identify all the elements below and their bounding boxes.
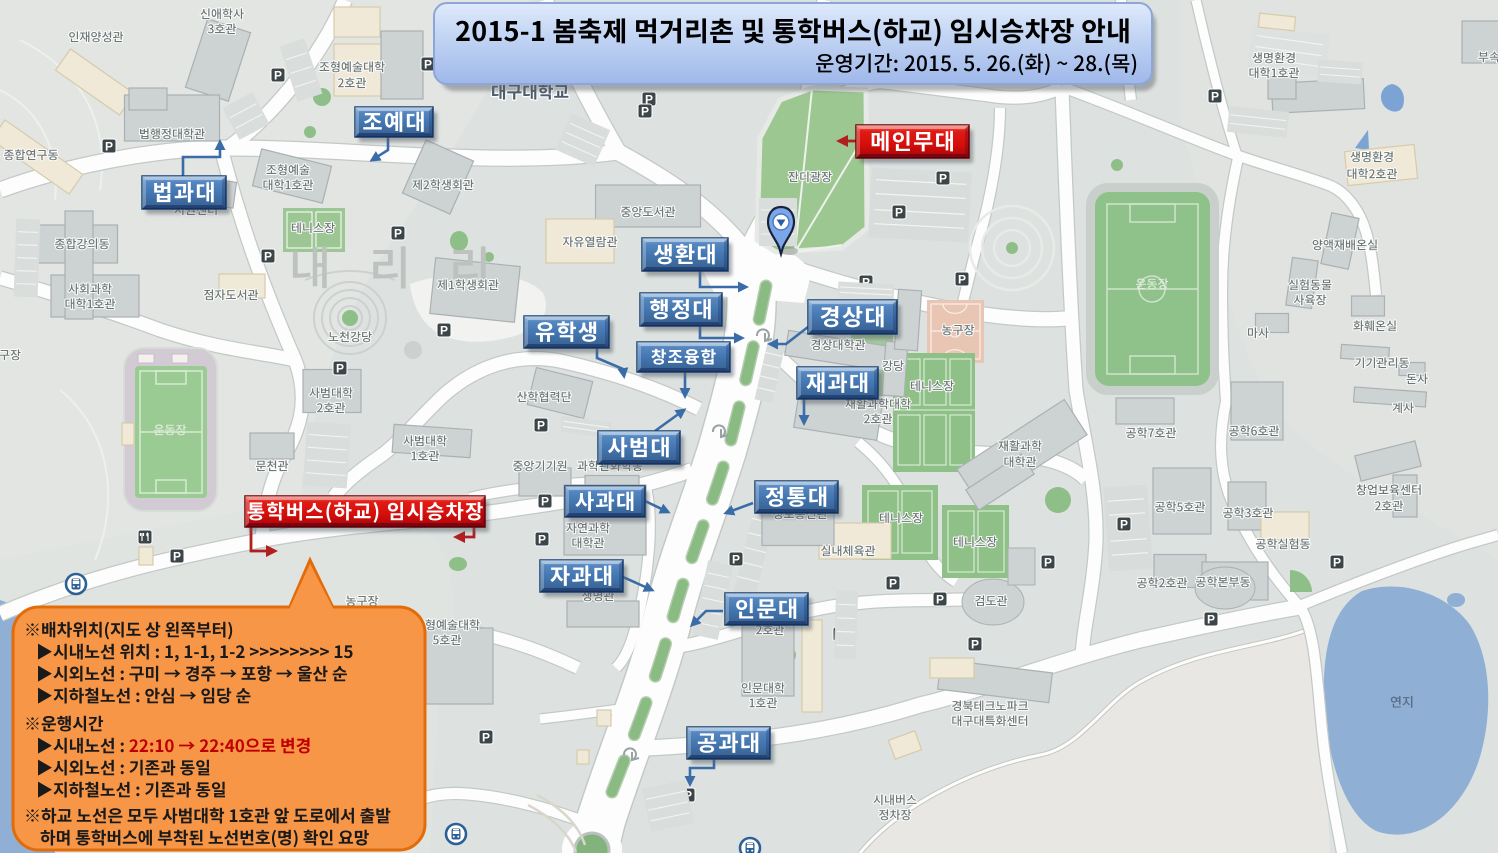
svg-text:P: P xyxy=(440,324,448,338)
svg-text:P: P xyxy=(1211,90,1219,104)
svg-text:P: P xyxy=(264,250,272,264)
svg-text:P: P xyxy=(641,105,649,119)
svg-text:P: P xyxy=(1333,556,1341,570)
svg-text:P: P xyxy=(895,206,903,220)
svg-text:P: P xyxy=(889,577,897,591)
svg-text:P: P xyxy=(105,140,113,154)
svg-text:P: P xyxy=(1207,613,1215,627)
svg-text:P: P xyxy=(173,550,181,564)
svg-text:P: P xyxy=(424,58,432,72)
svg-text:P: P xyxy=(939,172,947,186)
svg-text:P: P xyxy=(958,273,966,287)
svg-text:P: P xyxy=(336,362,344,376)
svg-text:P: P xyxy=(971,638,979,652)
svg-text:P: P xyxy=(1120,518,1128,532)
svg-text:P: P xyxy=(537,419,545,433)
svg-text:P: P xyxy=(936,593,944,607)
svg-text:P: P xyxy=(541,495,549,509)
svg-text:P: P xyxy=(482,731,490,745)
svg-text:P: P xyxy=(538,533,546,547)
svg-text:P: P xyxy=(394,227,402,241)
svg-text:P: P xyxy=(1044,556,1052,570)
svg-text:P: P xyxy=(274,69,282,83)
svg-text:P: P xyxy=(732,553,740,567)
